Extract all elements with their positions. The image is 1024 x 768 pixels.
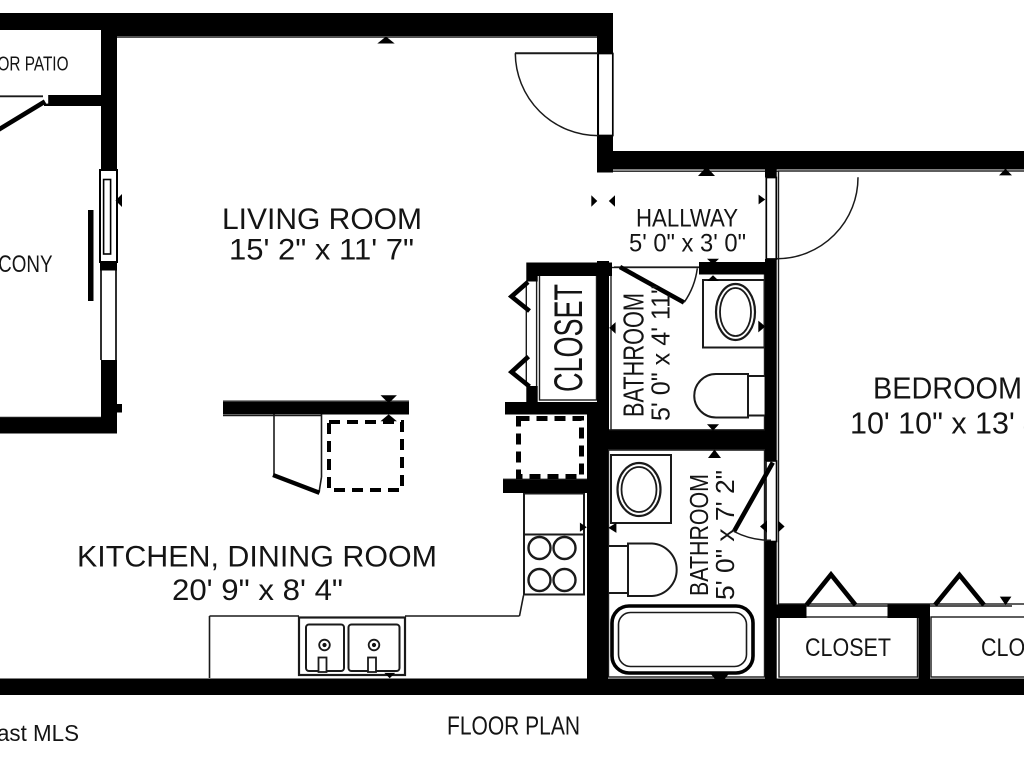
- svg-text:5' 0" x 7' 2": 5' 0" x 7' 2": [710, 470, 740, 600]
- svg-text:CLOSET: CLOSET: [805, 634, 891, 662]
- svg-text:CLOSET: CLOSET: [981, 634, 1024, 662]
- svg-text:ast MLS: ast MLS: [0, 720, 79, 746]
- svg-text:5' 0" x 4' 11": 5' 0" x 4' 11": [646, 285, 676, 421]
- svg-text:HALLWAY: HALLWAY: [636, 205, 738, 233]
- svg-text:FLOOR PLAN: FLOOR PLAN: [447, 711, 580, 741]
- svg-text:10' 10" x 13' 4": 10' 10" x 13' 4": [850, 406, 1024, 441]
- svg-text:BALCONY: BALCONY: [0, 251, 53, 278]
- svg-text:CLOSET: CLOSET: [547, 284, 591, 392]
- svg-text:BEDROOM: BEDROOM: [873, 371, 1022, 406]
- svg-text:KITCHEN, DINING ROOM: KITCHEN, DINING ROOM: [77, 541, 437, 574]
- svg-text:15' 2" x 11' 7": 15' 2" x 11' 7": [229, 234, 414, 267]
- svg-text:5' 0" x 3' 0": 5' 0" x 3' 0": [629, 230, 746, 258]
- svg-text:LIVING ROOM: LIVING ROOM: [222, 203, 422, 236]
- svg-text:20' 9" x 8' 4": 20' 9" x 8' 4": [172, 574, 343, 607]
- svg-text:OR PATIO: OR PATIO: [0, 54, 69, 76]
